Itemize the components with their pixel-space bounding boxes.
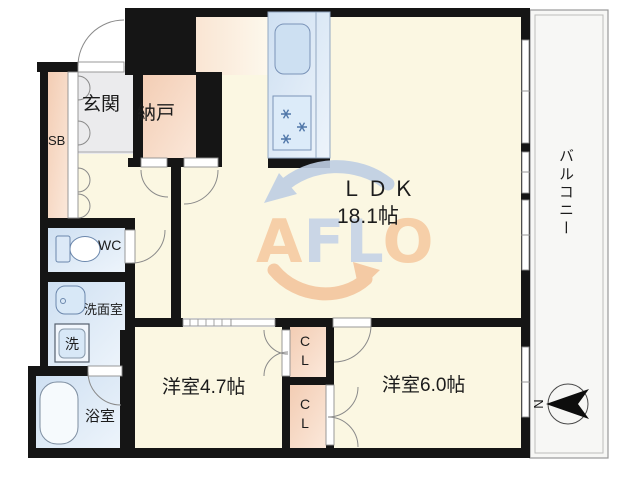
ldk-label: ＬＤＫ [341, 179, 419, 200]
bedroom-small-label: 洋室4.7帖 [162, 378, 245, 397]
bedroom-large-door-opening [333, 318, 371, 327]
closet-top-label: CL [298, 333, 312, 371]
stove-icon [273, 96, 311, 150]
wall-closet-left [282, 376, 290, 448]
windows [521, 40, 530, 417]
washer-label: 洗 [65, 336, 79, 352]
balcony-label: バルコニー [558, 148, 573, 238]
wall-left-outer [40, 62, 48, 368]
entrance-step-line [76, 151, 133, 153]
entrance-door-arc [78, 20, 124, 66]
shoe-box-doors [68, 72, 78, 218]
wall-bath-left [28, 366, 36, 458]
wall-closet-mid [282, 377, 334, 385]
closet-top-door-leaf [282, 330, 290, 376]
compass-north-label: N [531, 399, 546, 408]
washbasin-icon [56, 286, 85, 314]
shoe-box-label: SB [48, 134, 65, 147]
window-icon [522, 152, 529, 193]
window-icon [522, 40, 529, 143]
wall-shaft [196, 72, 222, 163]
sliding-door-panel [231, 319, 275, 326]
wall-washroom-top [43, 272, 135, 282]
bathtub-icon [40, 382, 78, 444]
floor-plan: AFLO N 洗 玄関 納戸 SB WC 洗面室 浴室 ＬＤＫ 18.1帖 洋室… [0, 0, 640, 477]
wall-wing-top [37, 62, 78, 72]
storage-label: 納戸 [137, 104, 175, 123]
toilet-icon [56, 236, 100, 262]
bathroom-label: 浴室 [85, 409, 115, 424]
entrance-label: 玄関 [82, 95, 120, 114]
toilet-label: WC [98, 238, 121, 252]
wall-bath-top [28, 366, 88, 376]
wall-hall-ldk [171, 167, 181, 318]
kitchen-counter [268, 12, 330, 158]
wall-closet-right [326, 327, 334, 385]
wall-bottom [28, 448, 530, 458]
wc-door-leaf [125, 230, 135, 263]
floor-plan-drawing: AFLO N 洗 [0, 0, 640, 477]
washroom-label: 洗面室 [84, 303, 123, 316]
ldk-area-label: 18.1帖 [337, 206, 399, 227]
ldk-door-opening [184, 158, 218, 167]
hall-door-opening [141, 158, 167, 167]
closet-bottom-door-leaf [326, 385, 334, 445]
alcove-floor [192, 16, 268, 75]
kitchen-sink-icon [275, 24, 310, 74]
wall-bedroom-left [120, 330, 135, 448]
bath-door-opening [88, 366, 122, 376]
closet-bottom-label: CL [298, 396, 312, 434]
wall-wc-top [43, 218, 135, 228]
entrance-door-leaf [78, 62, 124, 72]
bedroom-large-label: 洋室6.0帖 [382, 376, 465, 395]
